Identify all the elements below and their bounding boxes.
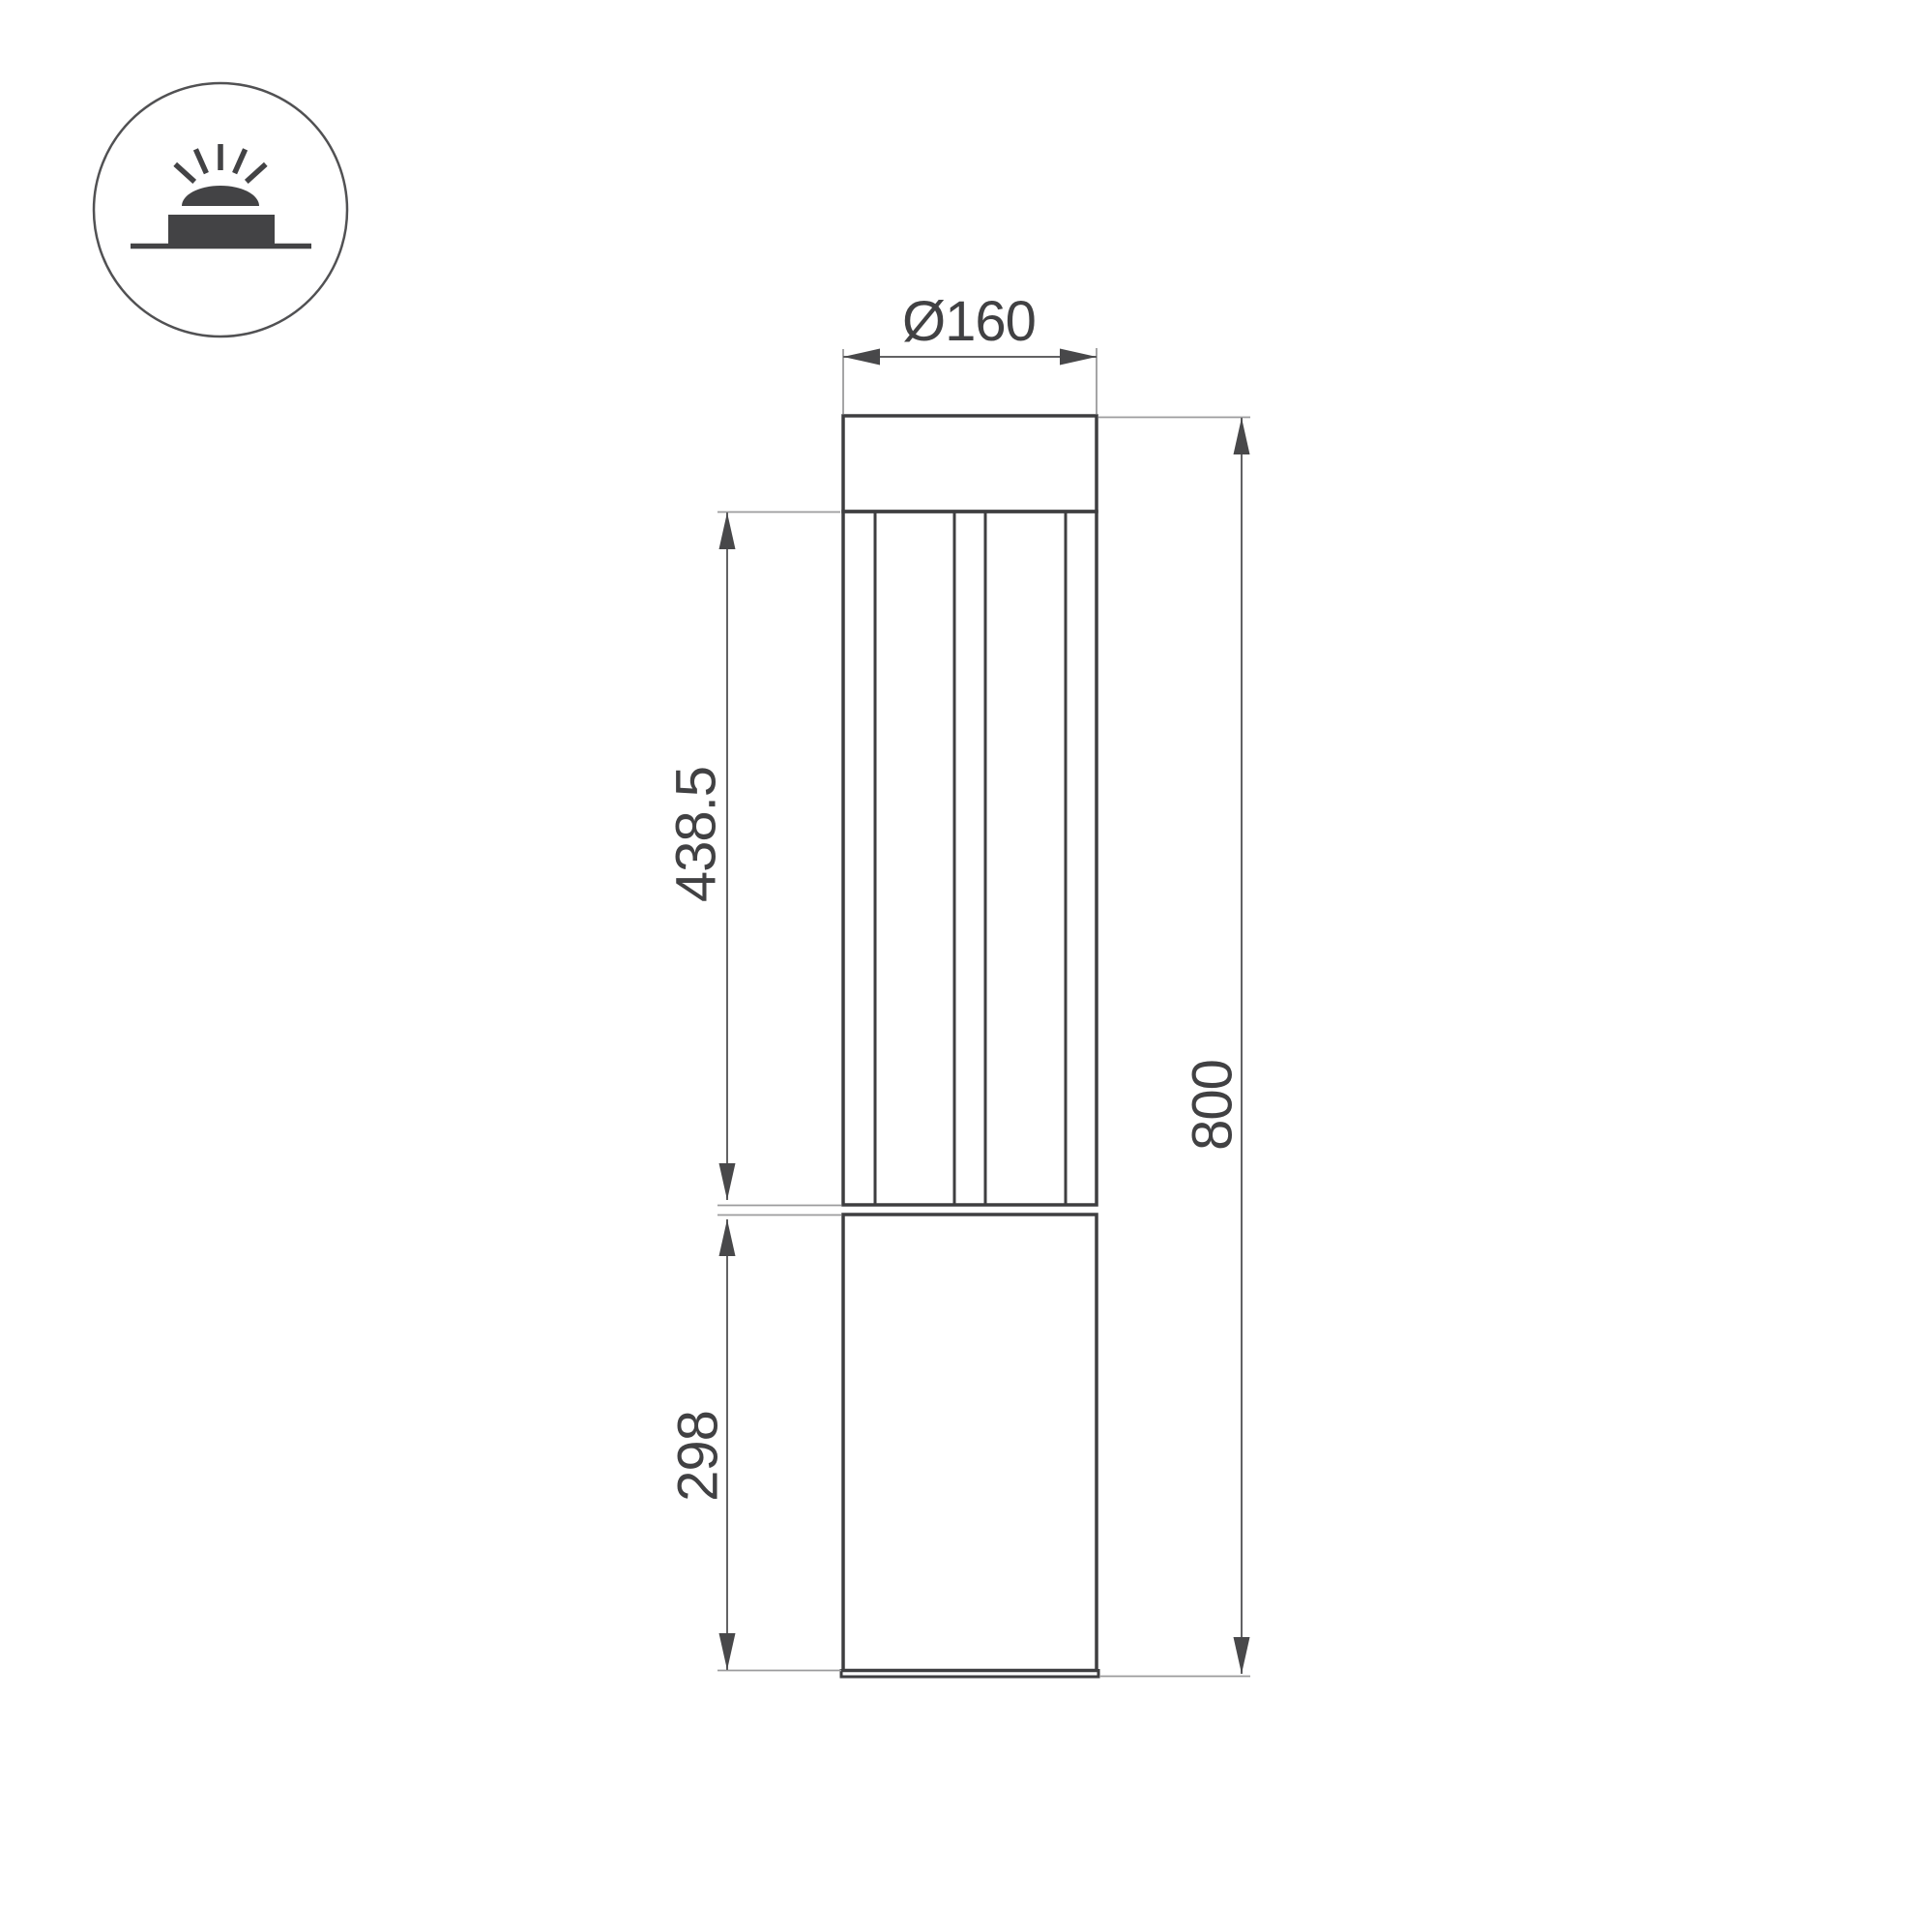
dimension-light-section-height: 438.5 <box>665 512 842 1206</box>
icon-circle-border <box>94 83 347 337</box>
dimension-total-height: 800 <box>1098 418 1250 1677</box>
arrowhead-up <box>1234 418 1250 454</box>
arrowhead-down <box>1234 1637 1250 1674</box>
arrowhead-up <box>719 512 736 549</box>
arrowhead-up <box>719 1219 736 1256</box>
dimension-drawing: Ø160 438.5 298 800 <box>0 0 1932 1932</box>
fixture-front-view <box>841 416 1098 1677</box>
arrowhead-right <box>1060 349 1097 366</box>
fixture-light-section <box>843 512 1097 1205</box>
fixture-top-cap <box>843 416 1097 512</box>
dimension-diameter: Ø160 <box>843 290 1097 414</box>
arrowhead-down <box>719 1633 736 1670</box>
arrowhead-down <box>719 1163 736 1200</box>
arrowhead-left <box>843 349 880 366</box>
dimension-label-total: 800 <box>1182 1060 1244 1151</box>
dimension-label-base: 298 <box>667 1411 730 1502</box>
fixture-foot-plate <box>841 1671 1098 1678</box>
fixture-base <box>843 1215 1097 1671</box>
icon-fixture-body <box>168 215 275 244</box>
dimension-base-height: 298 <box>667 1215 842 1671</box>
dimension-label-light-section: 438.5 <box>665 767 728 902</box>
dimension-label-diameter: Ø160 <box>902 290 1036 353</box>
surface-mounted-uplight-icon <box>94 83 347 337</box>
